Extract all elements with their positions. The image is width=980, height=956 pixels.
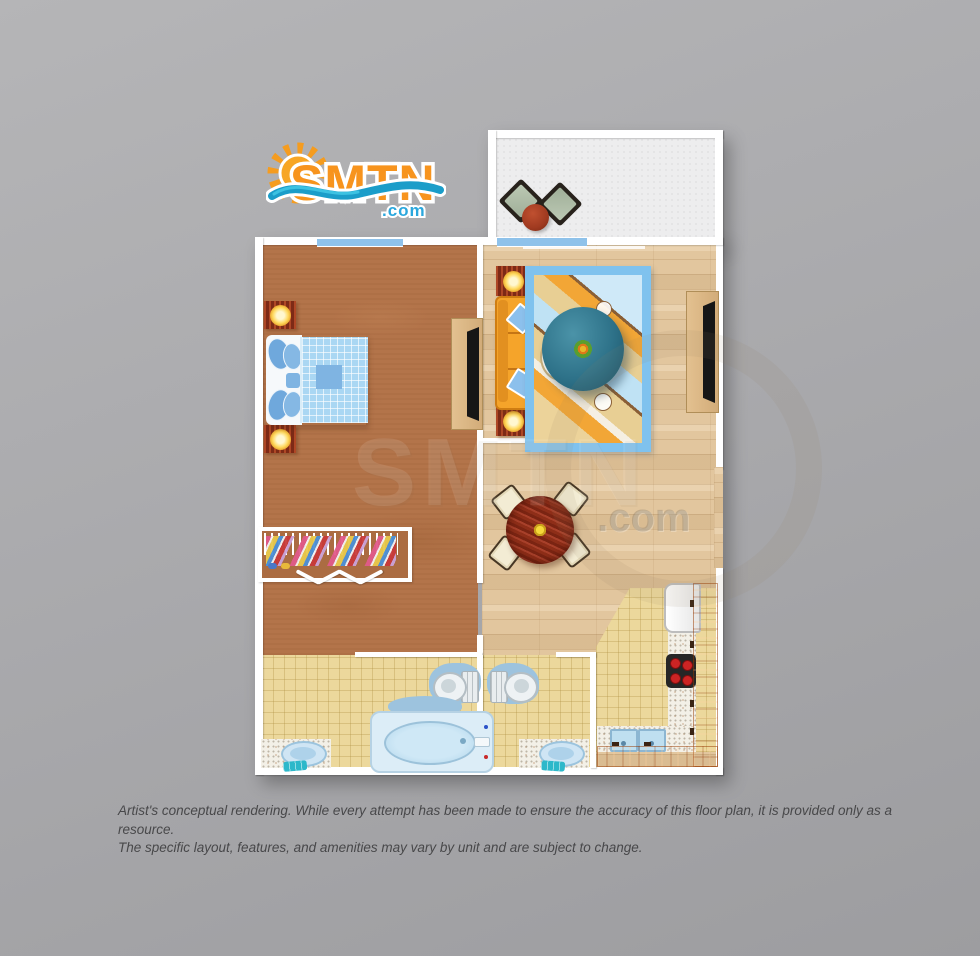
sliding-door-threshold — [523, 246, 645, 249]
smtn-logo: SMTN .com — [266, 136, 446, 222]
toilet-seat — [441, 679, 456, 693]
watermark-tld: .com — [597, 496, 690, 541]
balcony-wall-top — [488, 130, 723, 138]
kitchen-cabinets-bottom — [597, 746, 718, 767]
bathtub — [370, 711, 494, 773]
kitchen-cabinets-right — [693, 583, 718, 767]
burner — [670, 658, 681, 669]
cabinet-handle — [612, 742, 619, 746]
cold-tap-dot — [484, 755, 488, 759]
lamp — [270, 429, 291, 450]
disclaimer-text: Artist's conceptual rendering. While eve… — [118, 802, 898, 858]
bed-cushion-small — [286, 373, 300, 388]
closet-shoes — [281, 563, 290, 569]
burner — [682, 675, 693, 686]
disclaimer-line-2: The specific layout, features, and ameni… — [118, 839, 898, 858]
lamp — [503, 271, 524, 292]
unit-wall-left — [255, 237, 263, 775]
vanity-right — [519, 739, 589, 768]
bedroom-window — [317, 238, 403, 247]
floor-plan-page: SMTN .com SMTN .com Artist's conceptual … — [0, 0, 980, 956]
stove — [666, 654, 696, 688]
flower-centerpiece — [572, 338, 594, 360]
bathroom1-wall-top — [355, 652, 482, 657]
sink-basin — [290, 747, 316, 760]
logo-tld: .com — [382, 201, 426, 220]
burner — [670, 673, 681, 684]
cabinet-handle — [690, 641, 694, 648]
bathroom2-kitchen-wall — [590, 652, 596, 768]
balcony-wall-left — [488, 130, 496, 245]
bed-comforter — [300, 337, 368, 423]
towel — [541, 760, 566, 772]
bathtub-faucet — [474, 737, 490, 747]
patio-table — [522, 204, 549, 231]
disclaimer-line-1: Artist's conceptual rendering. While eve… — [118, 802, 898, 839]
lamp — [270, 305, 291, 326]
closet-shoes — [268, 563, 277, 569]
toilet-seat — [514, 679, 529, 693]
sink-basin — [548, 747, 574, 760]
burner — [682, 660, 693, 671]
cabinet-handle — [644, 742, 651, 746]
cabinet-handle — [690, 700, 694, 707]
vanity-left — [261, 739, 331, 768]
cabinet-handle — [690, 728, 694, 735]
towel — [283, 760, 308, 772]
nightstand-bottom — [264, 425, 296, 453]
toilet-bowl — [504, 672, 538, 703]
bedroom-tv-console — [451, 318, 483, 430]
closet-clothes — [266, 536, 396, 566]
bedroom-tv — [467, 327, 479, 421]
nightstand-top — [264, 301, 296, 329]
smtn-logo-graphic: SMTN .com — [266, 136, 446, 222]
hot-tap-dot — [484, 725, 488, 729]
bed — [266, 335, 366, 425]
comforter-square — [316, 365, 342, 389]
bathtub-drain — [460, 738, 466, 744]
